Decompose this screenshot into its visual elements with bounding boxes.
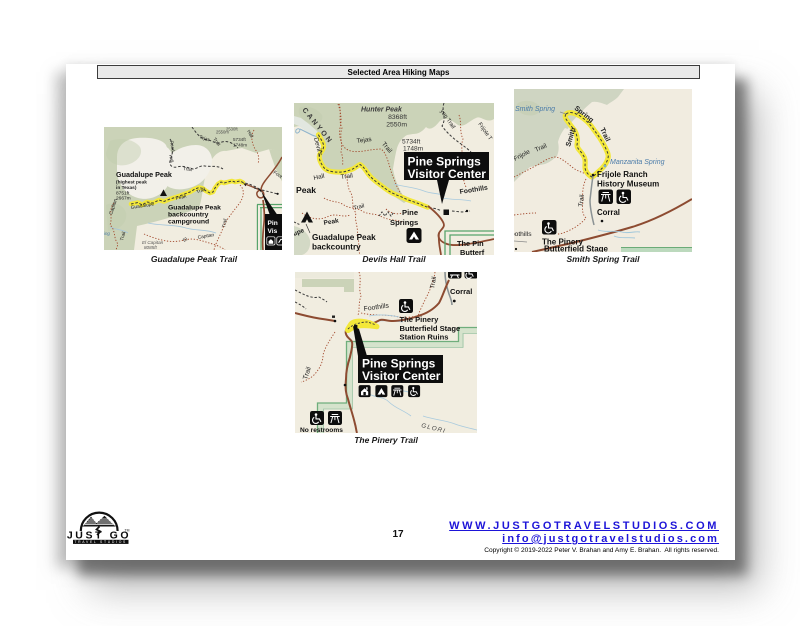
svg-text:Corral: Corral <box>597 208 620 217</box>
svg-text:No restrooms: No restrooms <box>300 427 343 433</box>
svg-text:Pine: Pine <box>402 208 418 217</box>
svg-text:2530ft: 2530ft <box>226 127 238 132</box>
svg-text:1748m: 1748m <box>233 143 247 148</box>
svg-text:8751ft: 8751ft <box>116 190 130 196</box>
svg-text:1748m: 1748m <box>403 146 424 153</box>
svg-text:ing: ing <box>104 231 110 236</box>
svg-text:5734ft: 5734ft <box>233 137 246 142</box>
svg-text:Frijole Ranch: Frijole Ranch <box>597 170 648 179</box>
svg-text:TM: TM <box>125 529 130 533</box>
svg-text:5734ft: 5734ft <box>402 139 421 146</box>
svg-text:Peak: Peak <box>296 185 316 195</box>
svg-text:Trail: Trail <box>578 194 586 207</box>
svg-text:Guadalupe Peak: Guadalupe Peak <box>116 170 172 179</box>
svg-text:Guadalupe Peak: Guadalupe Peak <box>312 233 376 242</box>
svg-text:oothills: oothills <box>514 231 532 238</box>
svg-text:(highest peak: (highest peak <box>116 180 147 186</box>
svg-text:in Texas): in Texas) <box>116 185 137 191</box>
svg-text:Butterfield Stage: Butterfield Stage <box>544 245 609 253</box>
svg-text:Springs: Springs <box>390 218 418 227</box>
svg-text:Manzanita Spring: Manzanita Spring <box>610 159 665 166</box>
svg-text:Pin: Pin <box>268 220 278 227</box>
svg-text:Station Ruins: Station Ruins <box>400 333 449 342</box>
svg-text:Visitor Center: Visitor Center <box>362 369 441 383</box>
svg-text:Hunter Peak: Hunter Peak <box>361 107 403 114</box>
svg-text:backcountry: backcountry <box>168 212 209 219</box>
svg-text:Visitor Center: Visitor Center <box>408 167 487 181</box>
svg-text:Corral: Corral <box>450 287 472 296</box>
svg-text:The Pin: The Pin <box>457 239 484 248</box>
svg-text:2550m: 2550m <box>386 121 407 128</box>
svg-text:The Pinery: The Pinery <box>400 315 440 324</box>
svg-text:TRAVEL STUDIOS: TRAVEL STUDIOS <box>74 540 127 544</box>
svg-text:8368ft: 8368ft <box>388 114 407 121</box>
svg-text:Guadalupe Peak: Guadalupe Peak <box>168 205 221 212</box>
svg-text:Smith Spring: Smith Spring <box>515 106 555 113</box>
svg-text:campground: campground <box>168 219 209 226</box>
svg-text:Vis: Vis <box>268 228 278 235</box>
svg-text:History Museum: History Museum <box>597 180 659 189</box>
svg-text:backcountry: backcountry <box>312 243 361 252</box>
svg-text:8085ft: 8085ft <box>144 245 157 250</box>
